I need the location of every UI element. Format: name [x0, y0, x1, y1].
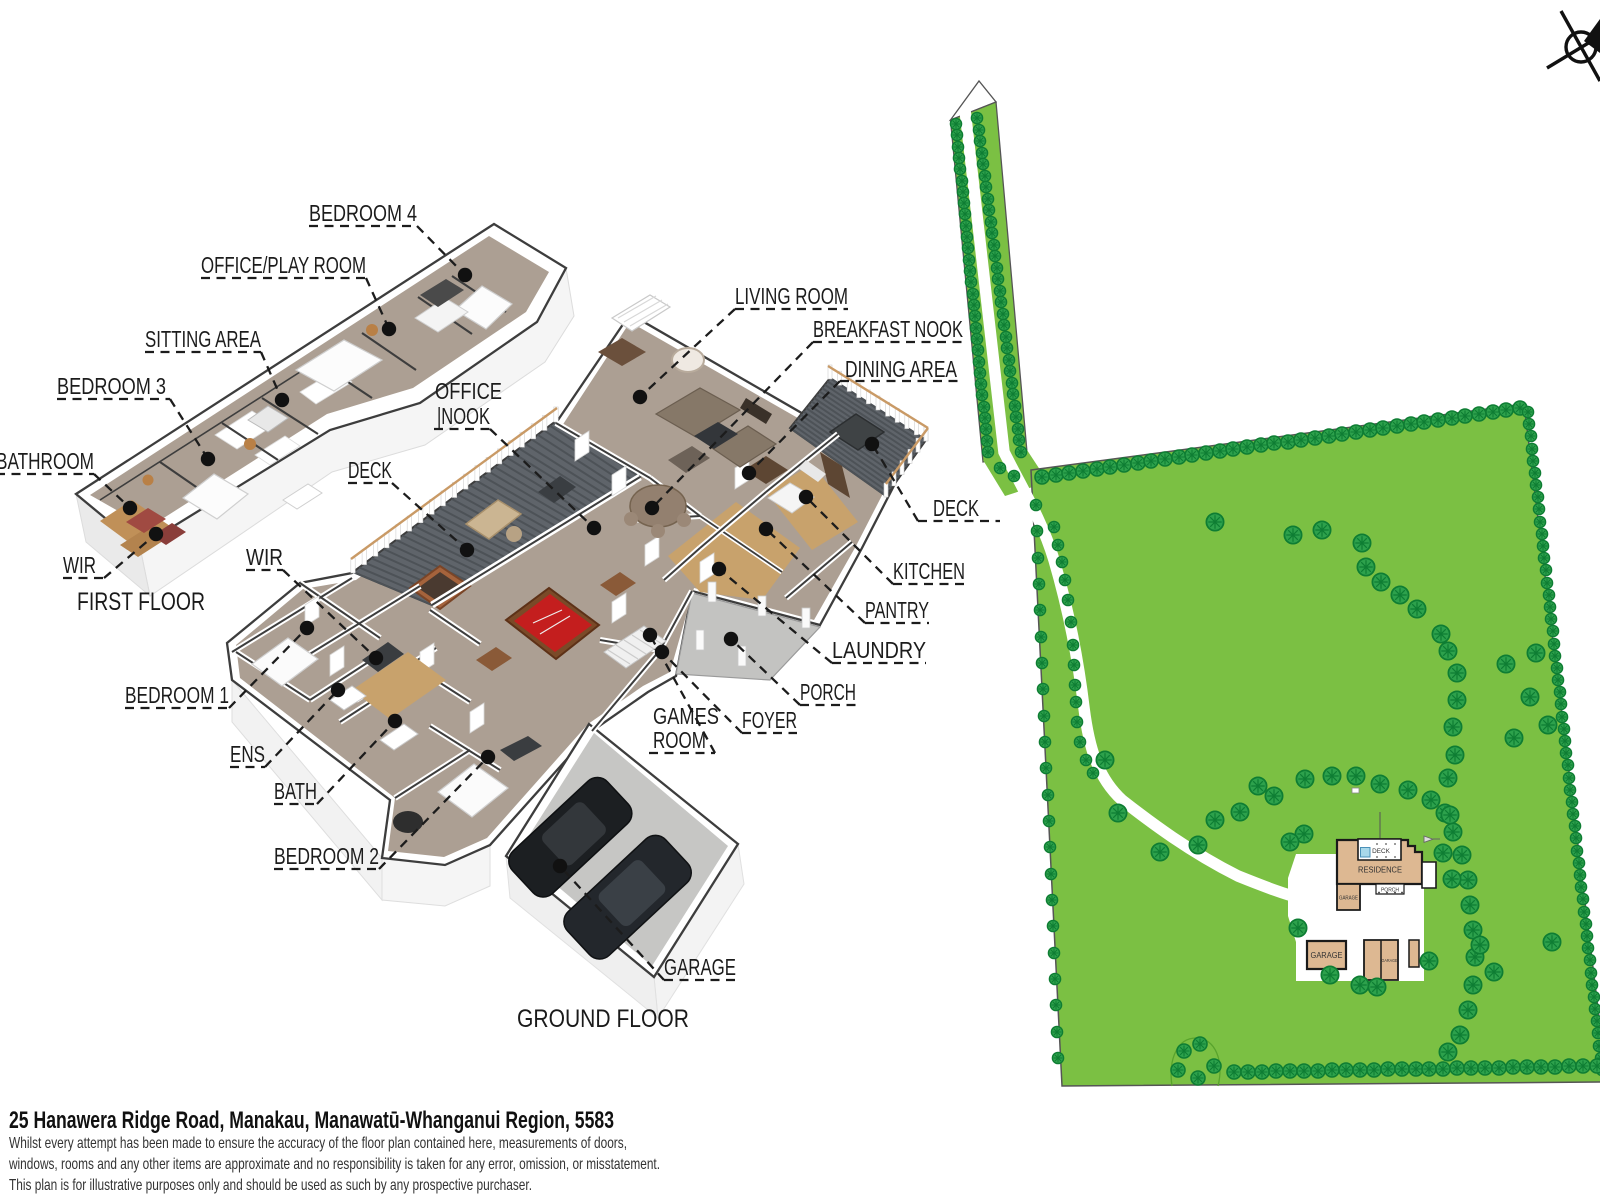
svg-text:GARAGE: GARAGE: [1382, 958, 1398, 964]
svg-text:LIVING ROOM: LIVING ROOM: [735, 283, 848, 309]
svg-text:Whilst every attempt has been: Whilst every attempt has been made to en…: [9, 1135, 627, 1152]
svg-text:GARAGE: GARAGE: [1339, 896, 1358, 902]
svg-text:BEDROOM 4: BEDROOM 4: [309, 200, 417, 226]
svg-text:GAMES: GAMES: [653, 703, 719, 729]
svg-text:OFFICE: OFFICE: [435, 378, 502, 404]
svg-text:windows, rooms and any other i: windows, rooms and any other items are a…: [8, 1156, 660, 1173]
svg-text:OFFICE/PLAY ROOM: OFFICE/PLAY ROOM: [201, 252, 366, 278]
svg-text:FOYER: FOYER: [742, 707, 797, 733]
svg-text:DECK: DECK: [933, 495, 979, 521]
svg-text:RESIDENCE: RESIDENCE: [1358, 865, 1402, 875]
svg-text:KITCHEN: KITCHEN: [893, 558, 965, 584]
svg-text:PORCH: PORCH: [1381, 888, 1399, 894]
svg-text:GARAGE: GARAGE: [1311, 951, 1343, 960]
svg-text:BATHROOM: BATHROOM: [0, 448, 94, 474]
svg-text:PORCH: PORCH: [800, 679, 856, 705]
svg-text:WIR: WIR: [246, 544, 283, 570]
svg-text:LAUNDRY: LAUNDRY: [832, 637, 926, 663]
svg-text:GROUND FLOOR: GROUND FLOOR: [517, 1005, 689, 1033]
svg-text:DECK: DECK: [1372, 848, 1390, 855]
svg-text:ENS: ENS: [230, 741, 265, 767]
svg-text:This plan is for illustrative: This plan is for illustrative purposes o…: [9, 1177, 532, 1194]
svg-text:|NOOK: |NOOK: [437, 403, 490, 429]
svg-text:25 Hanawera Ridge Road, Manaka: 25 Hanawera Ridge Road, Manakau, Manawat…: [9, 1107, 614, 1134]
svg-text:BEDROOM 3: BEDROOM 3: [57, 373, 166, 399]
svg-text:DECK: DECK: [348, 457, 392, 483]
svg-text:SITTING AREA: SITTING AREA: [145, 326, 261, 352]
svg-text:DINING AREA: DINING AREA: [845, 356, 957, 382]
svg-text:BREAKFAST NOOK: BREAKFAST NOOK: [813, 316, 963, 342]
svg-text:FIRST FLOOR: FIRST FLOOR: [77, 588, 205, 616]
svg-text:BEDROOM 1: BEDROOM 1: [125, 682, 229, 708]
svg-text:BEDROOM 2: BEDROOM 2: [274, 843, 379, 869]
svg-text:WIR: WIR: [63, 552, 96, 578]
svg-text:ROOM: ROOM: [653, 727, 706, 753]
svg-text:PANTRY: PANTRY: [865, 597, 929, 623]
svg-text:GARAGE: GARAGE: [664, 954, 736, 980]
svg-text:BATH: BATH: [274, 778, 317, 804]
